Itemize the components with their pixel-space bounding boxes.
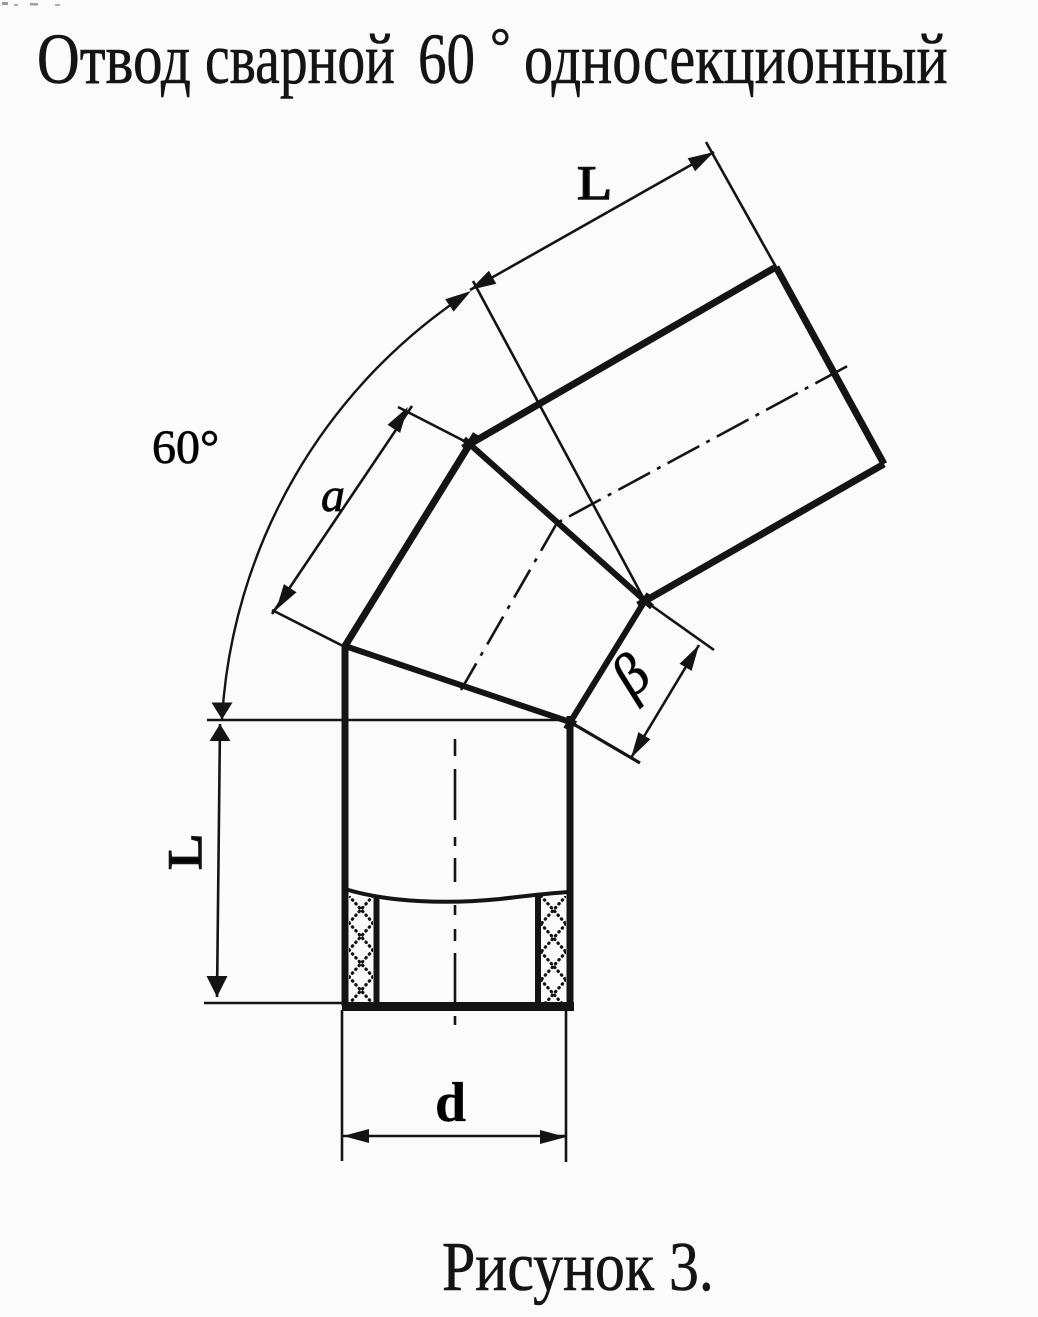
svg-text:d: d [435, 1072, 466, 1134]
svg-text:L: L [577, 157, 612, 210]
svg-text:L: L [159, 833, 212, 870]
svg-text:β: β [597, 641, 663, 709]
svg-text:60°: 60° [152, 421, 219, 474]
svg-text:a: a [321, 469, 345, 522]
